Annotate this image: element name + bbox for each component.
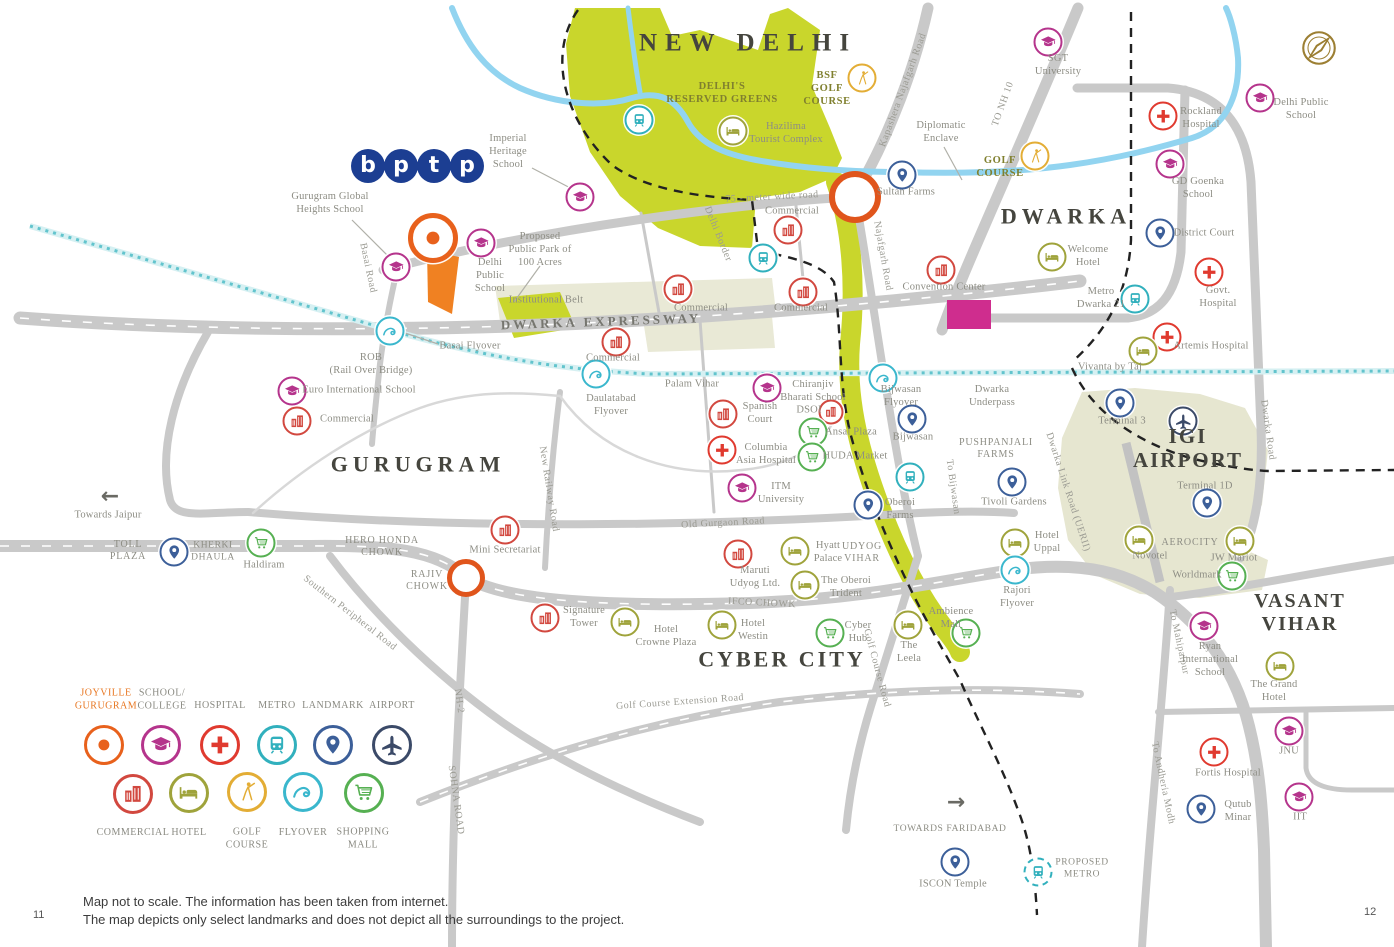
poi-label: The Leela	[897, 640, 921, 666]
school-icon	[1246, 84, 1275, 113]
commercial-icon	[531, 604, 560, 633]
area-label: ROB (Rail Over Bridge)	[330, 352, 413, 378]
page-number-right: 12	[1364, 906, 1376, 918]
legend-label: FLYOVER	[279, 827, 328, 840]
poi-label: Gurugram Global Heights School	[291, 191, 368, 217]
area-label: Rajori Flyover	[1000, 585, 1034, 611]
school-icon	[1275, 717, 1304, 746]
legend-label: SCHOOL/ COLLEGE	[137, 688, 186, 713]
region-label: GURUGRAM	[331, 451, 505, 476]
hotel-icon	[791, 571, 820, 600]
hotel-icon	[1038, 243, 1067, 272]
legend-label: JOYVILLE GURUGRAM	[75, 688, 137, 713]
poi-label: Novotel	[1132, 551, 1167, 564]
area-label: RAJIV CHOWK	[406, 569, 448, 593]
legend-label: COMMERCIAL	[97, 827, 170, 840]
area-label: AEROCITY	[1162, 537, 1219, 549]
poi-label: District Court	[1174, 228, 1235, 241]
poi-label: Metro Dwarka 21	[1077, 286, 1125, 312]
legend-label: SHOPPING MALL	[337, 827, 390, 852]
poi-label: ISCON Temple	[919, 879, 987, 892]
bptp-logo: bptp	[351, 149, 483, 183]
school-icon	[141, 725, 181, 765]
region-label: DWARKA	[1001, 203, 1131, 228]
mall-icon	[816, 619, 845, 648]
metro-icon	[625, 106, 654, 135]
poi-label: Chiranjiv Bharati School	[780, 379, 846, 405]
joyville-icon	[84, 725, 124, 765]
mall-icon	[1218, 562, 1247, 591]
landmark-icon	[160, 538, 189, 567]
poi-label: GD Goenka School	[1172, 176, 1224, 202]
school-icon	[728, 474, 757, 503]
compass-icon	[1298, 27, 1340, 69]
flyover-icon	[1001, 556, 1030, 585]
commercial-icon	[927, 256, 956, 285]
map-base-art	[0, 0, 1394, 947]
poi-label: Maruti Udyog Ltd.	[730, 565, 780, 591]
school-icon	[566, 183, 595, 212]
poi-label: Commercial	[765, 206, 819, 219]
page-number-left: 11	[33, 909, 44, 921]
golf-icon	[848, 64, 877, 93]
poi-label: Hotel Uppal	[1034, 530, 1061, 556]
poi-label: Euro International School	[302, 385, 415, 398]
golf-icon	[227, 772, 267, 812]
area-label: Basai Flyover	[439, 341, 500, 354]
hospital-icon	[1195, 258, 1224, 287]
hotel-icon	[169, 773, 209, 813]
airport-icon	[372, 725, 412, 765]
poi-label: Cyber Hub	[845, 620, 872, 646]
poi-label: Sultan Farms	[877, 187, 935, 200]
poi-label: Terminal 1D	[1177, 481, 1232, 494]
poi-label: Commercial	[320, 414, 374, 427]
landmark-icon	[941, 848, 970, 877]
joyville-icon	[408, 213, 458, 263]
poi-label: Commercial	[586, 353, 640, 366]
area-label: Proposed Public Park of 100 Acres	[509, 231, 572, 269]
metro-icon	[749, 244, 778, 273]
poi-label: Ansal Plaza	[825, 427, 877, 440]
school-icon	[467, 229, 496, 258]
area-label: PUSHPANJALI FARMS	[959, 437, 1033, 461]
flyover-junction-ring	[829, 171, 881, 223]
landmark-icon	[888, 161, 917, 190]
bptp-logo-letter: p	[384, 149, 418, 183]
poi-label: Tivoli Gardens	[981, 497, 1047, 510]
commercial-icon	[709, 400, 738, 429]
poi-label: The Grand Hotel	[1251, 679, 1298, 705]
hotel-icon	[1226, 527, 1255, 556]
poi-label: Delhi Public School	[475, 257, 505, 295]
metro-icon	[257, 725, 297, 765]
hotel-icon	[1001, 529, 1030, 558]
poi-label: Welcome Hotel	[1068, 244, 1109, 270]
area-label: HERO HONDA CHOWK	[345, 535, 419, 559]
poi-label: Rockland Hospital	[1180, 106, 1222, 132]
landmark-icon	[1106, 389, 1135, 418]
direction-label: TOWARDS FARIDABAD	[893, 824, 1006, 836]
poi-label: Ambience Mall	[929, 606, 974, 632]
disclaimer-line1: Map not to scale. The information has be…	[83, 893, 624, 911]
poi-label: Fortis Hospital	[1195, 768, 1261, 781]
commercial-icon	[664, 275, 693, 304]
poi-label: ITM University	[758, 481, 804, 507]
disclaimer-line2: The map depicts only select landmarks an…	[83, 911, 624, 929]
metro-icon	[1024, 858, 1053, 887]
poi-label: Convention Center	[902, 282, 985, 295]
metro-icon	[896, 463, 925, 492]
poi-label: Hazilima Tourist Complex	[749, 121, 823, 147]
legend-label: GOLF COURSE	[226, 827, 268, 852]
poi-label: Qutub Minar	[1224, 799, 1251, 825]
poi-label: Artemis Hospital	[1173, 341, 1248, 354]
poi-label: Worldmark	[1172, 570, 1221, 583]
poi-label: The Oberoi Trident	[821, 575, 871, 601]
poi-label: Spanish Court	[743, 401, 778, 427]
legend-label: AIRPORT	[369, 700, 415, 713]
hospital-icon	[200, 725, 240, 765]
hospital-icon	[1200, 738, 1229, 767]
poi-label: Mini Secretariat	[469, 545, 540, 558]
commercial-icon	[774, 216, 803, 245]
poi-label: JNU	[1279, 746, 1299, 759]
hotel-icon	[894, 611, 923, 640]
poi-label: Hyatt Palace	[814, 540, 843, 566]
poi-label: Delhi Public School	[1273, 97, 1328, 123]
commercial-icon	[491, 516, 520, 545]
poi-label: Ryan International School	[1182, 641, 1238, 679]
hospital-icon	[708, 436, 737, 465]
direction-arrow-icon: ←	[101, 486, 119, 508]
poi-label: Signature Tower	[563, 605, 605, 631]
hospital-icon	[1149, 102, 1178, 131]
legend-label: LANDMARK	[302, 700, 364, 713]
commercial-icon	[724, 540, 753, 569]
area-label: Bijwasan Flyover	[881, 384, 922, 410]
poi-label: Vivanta by Taj	[1078, 362, 1142, 375]
direction-arrow-icon: →	[947, 792, 965, 814]
bptp-logo-letter: t	[417, 149, 451, 183]
poi-label: HUDA Market	[823, 451, 888, 464]
area-label: Dwarka Underpass	[969, 384, 1015, 410]
school-icon	[1285, 783, 1314, 812]
area-label: Palam Vihar	[665, 379, 719, 392]
poi-label: Commercial	[674, 303, 728, 316]
commercial-icon	[113, 774, 153, 814]
poi-label: Imperial Heritage School	[489, 133, 527, 171]
convention-center-plot	[947, 300, 991, 329]
poi-label: KHERKI DHAULA	[191, 540, 235, 563]
poi-label: DSOI	[796, 405, 821, 418]
poi-label: JW Mariot	[1211, 553, 1258, 566]
school-icon	[382, 253, 411, 282]
legend-label: METRO	[258, 700, 296, 713]
area-label: TOLL PLAZA	[110, 539, 146, 563]
mall-icon	[344, 773, 384, 813]
poi-label: IIT	[1293, 812, 1307, 825]
school-icon	[1156, 150, 1185, 179]
poi-label: Columbia Asia Hospital	[736, 442, 796, 468]
golf-icon	[1021, 142, 1050, 171]
poi-label: Oberoi Farms	[885, 497, 915, 523]
school-icon	[753, 374, 782, 403]
area-label: UDYOG VIHAR	[842, 541, 882, 565]
area-label: GOLF COURSE	[976, 155, 1023, 181]
landmark-icon	[998, 468, 1027, 497]
poi-label: Hotel Westin	[738, 618, 768, 644]
area-label: BSF GOLF COURSE	[803, 70, 850, 108]
legend-label: HOSPITAL	[194, 700, 246, 713]
school-icon	[1190, 612, 1219, 641]
school-icon	[1034, 28, 1063, 57]
hotel-icon	[1266, 652, 1295, 681]
area-label: Diplomatic Enclave	[916, 120, 965, 146]
commercial-icon	[283, 407, 312, 436]
location-map: bptp Map not to scale. The information h…	[0, 0, 1394, 947]
flyover-junction-ring	[447, 559, 485, 597]
hotel-icon	[781, 537, 810, 566]
poi-label: Hotel Crowne Plaza	[635, 624, 696, 650]
area-label: Daulatabad Flyover	[586, 393, 636, 419]
direction-label: Towards Jaipur	[74, 510, 141, 523]
bptp-logo-letter: b	[351, 149, 385, 183]
poi-label: Govt. Hospital	[1199, 285, 1236, 311]
hotel-icon	[708, 611, 737, 640]
poi-label: Commercial	[774, 303, 828, 316]
bptp-logo-letter: p	[450, 149, 484, 183]
region-label: CYBER CITY	[698, 646, 866, 671]
poi-label: PROPOSED METRO	[1055, 857, 1108, 880]
poi-label: Bijwasan	[893, 432, 934, 445]
landmark-icon	[1187, 795, 1216, 824]
area-label: Institutional Belt	[509, 295, 583, 308]
map-disclaimer: Map not to scale. The information has be…	[83, 893, 624, 928]
poi-label: SGT University	[1035, 53, 1081, 79]
landmark-icon	[854, 491, 883, 520]
landmark-icon	[1146, 219, 1175, 248]
flyover-icon	[283, 772, 323, 812]
area-label: DELHI'S RESERVED GREENS	[666, 81, 778, 107]
mall-icon	[247, 529, 276, 558]
hotel-icon	[719, 117, 748, 146]
legend-label: HOTEL	[171, 827, 206, 840]
landmark-icon	[313, 725, 353, 765]
poi-label: Haldiram	[243, 560, 284, 573]
region-label: IGI AIRPORT	[1133, 424, 1243, 472]
flyover-icon	[376, 317, 405, 346]
region-label: VASANT VIHAR	[1254, 590, 1346, 636]
region-label: NEW DELHI	[639, 30, 857, 59]
